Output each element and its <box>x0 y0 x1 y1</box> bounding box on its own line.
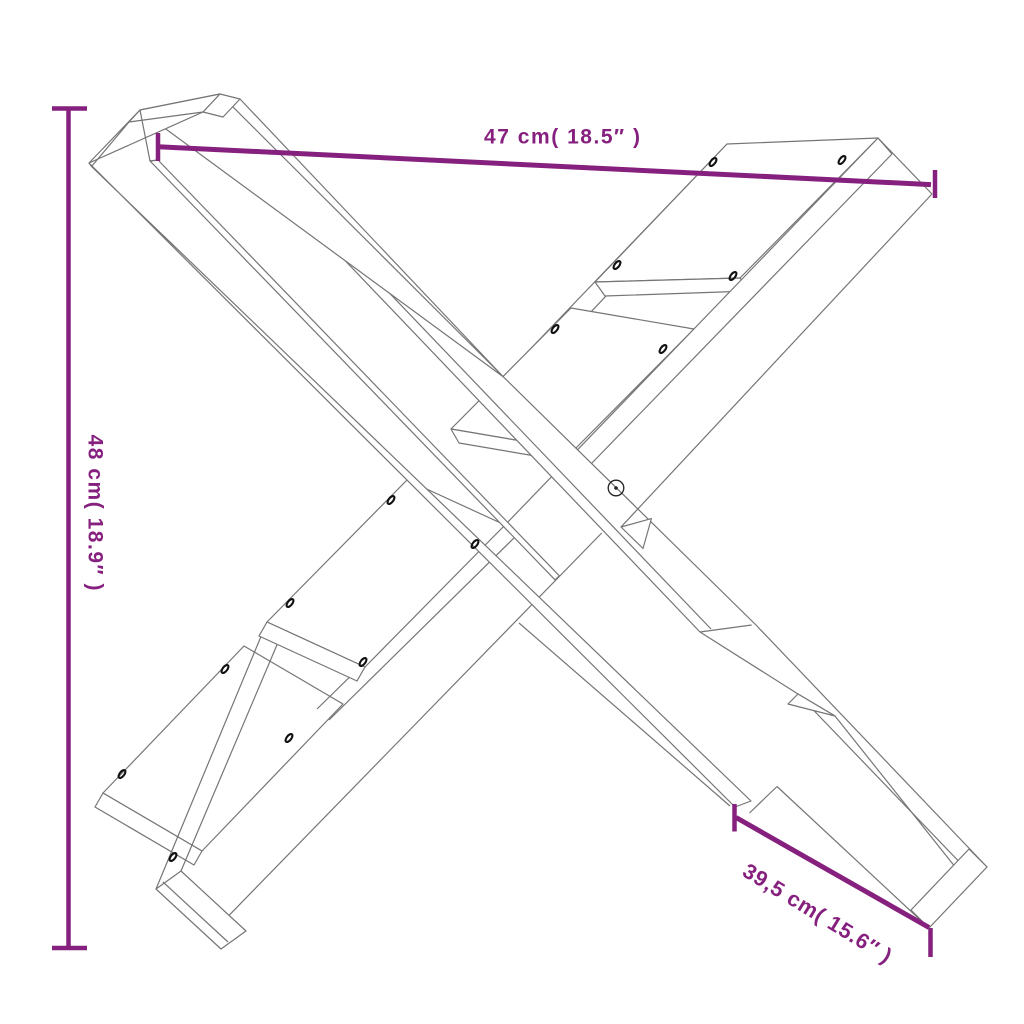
svg-text:47 cm( 18.5″ ): 47 cm( 18.5″ ) <box>484 126 640 149</box>
svg-text:48 cm( 18.9″ ): 48 cm( 18.9″ ) <box>84 435 107 591</box>
